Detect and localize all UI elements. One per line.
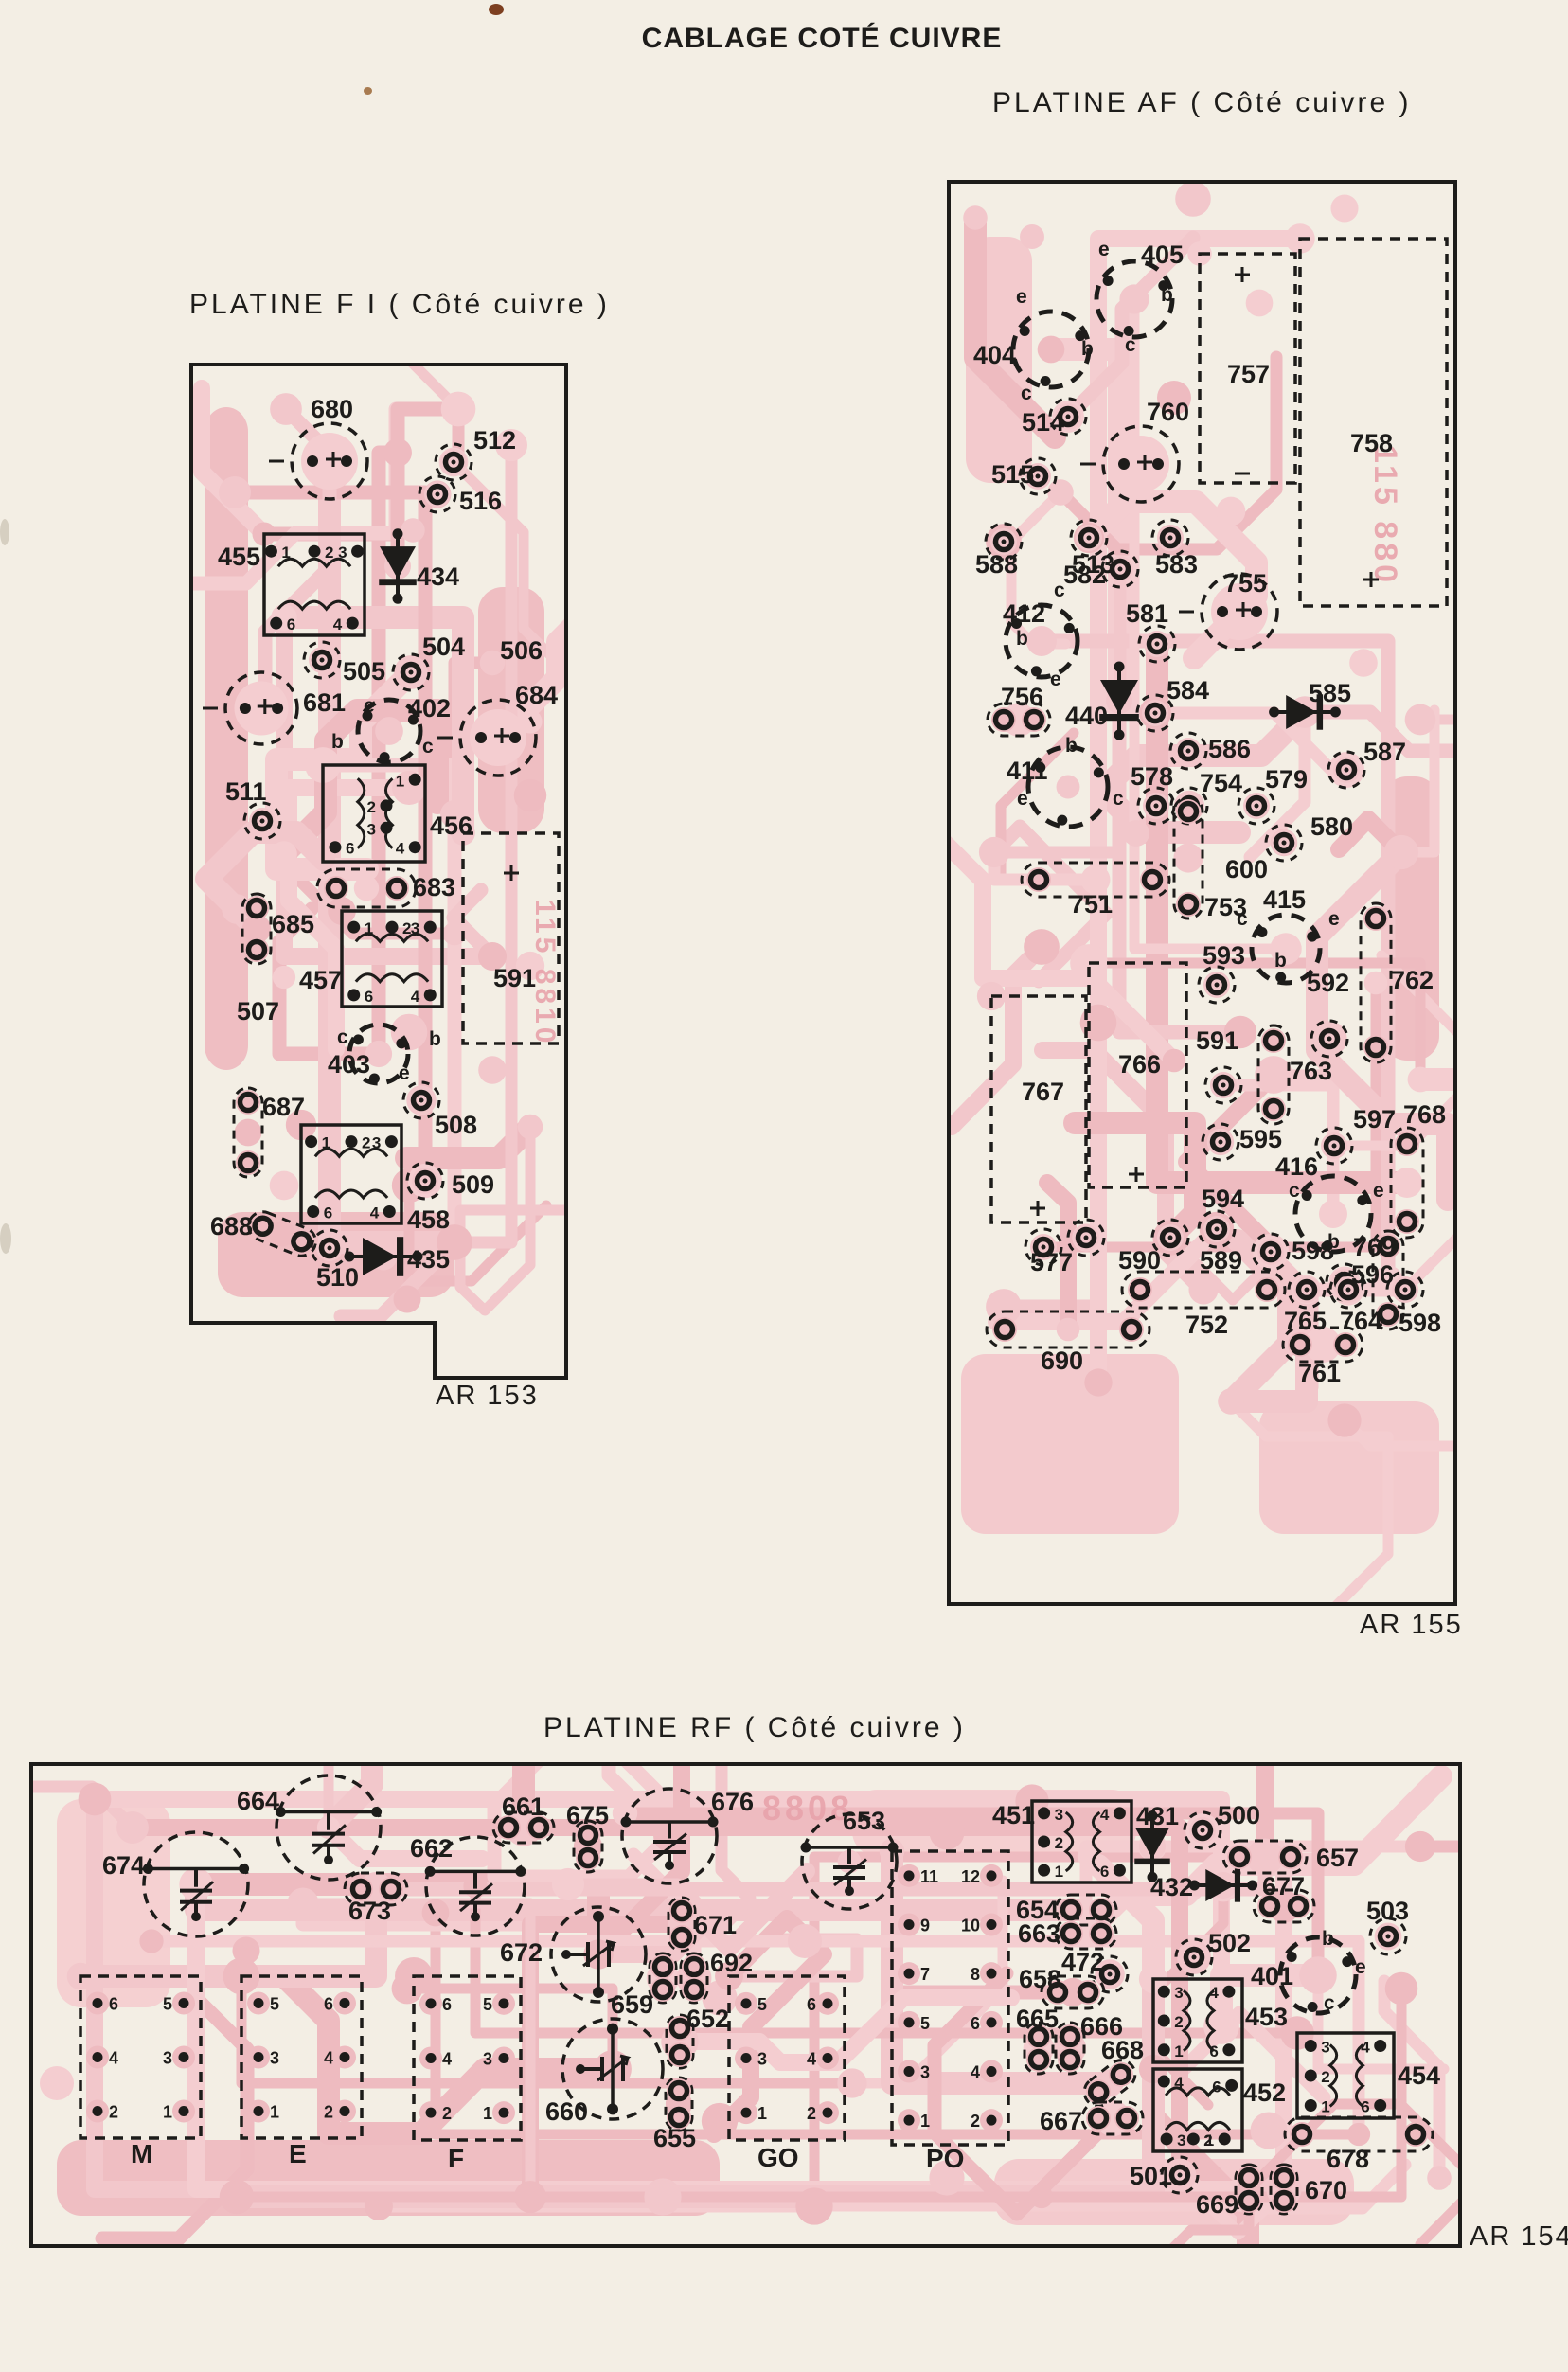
svg-text:1: 1 [270,2103,279,2122]
svg-text:1: 1 [1205,2131,1214,2149]
svg-text:2: 2 [807,2104,816,2123]
label-665: 665 [1016,2005,1059,2033]
label-e: e [364,695,375,717]
label-M: M [131,2139,152,2168]
label-411: 411 [1007,757,1048,785]
paper-speck [0,1223,11,1254]
label-GO: GO [757,2143,799,2172]
svg-text:4: 4 [396,840,405,858]
label-754: 754 [1200,769,1242,797]
label-c: c [1324,1992,1335,2014]
scanned-page: CABLAGE COTÉ CUIVRE PLATINE F I ( Côté c… [0,0,1568,2367]
label-657: 657 [1316,1844,1359,1872]
label-508: 508 [435,1111,477,1139]
svg-text:6: 6 [1209,2042,1218,2060]
svg-text:3: 3 [270,2049,279,2068]
label-587: 587 [1363,738,1406,766]
label-586: 586 [1208,735,1251,763]
label-456: 456 [430,811,472,840]
label-661: 661 [502,1792,544,1821]
label-683: 683 [413,873,455,901]
svg-text:4: 4 [370,1204,380,1222]
svg-text:4: 4 [807,2050,816,2069]
svg-text:1: 1 [1174,2042,1183,2060]
label-673: 673 [348,1897,391,1925]
svg-text:6: 6 [807,1995,816,2014]
svg-text:4: 4 [411,988,420,1006]
label-690: 690 [1041,1347,1083,1375]
label-e: e [1016,286,1027,308]
label-578: 578 [1131,762,1173,791]
svg-text:6: 6 [287,615,295,633]
label-758: 758 [1350,429,1393,457]
label-515: 515 [991,460,1034,489]
label-458: 458 [407,1205,450,1234]
label-670: 670 [1305,2176,1347,2204]
label-e: e [399,1062,410,1084]
svg-text:3: 3 [757,2050,767,2069]
svg-text:3: 3 [1177,2131,1185,2149]
label-506: 506 [500,636,543,665]
svg-text:12: 12 [961,1867,980,1886]
label-510: 510 [316,1263,359,1292]
label-c: c [1237,908,1248,930]
label-405: 405 [1141,241,1184,269]
label-b: b [429,1028,441,1050]
label-677: 677 [1262,1872,1305,1900]
label-412: 412 [1003,599,1045,628]
label-585: 585 [1309,679,1351,707]
svg-text:2: 2 [1321,2068,1329,2086]
label-c: c [1289,1180,1300,1202]
label-e: e [1355,1956,1366,1978]
label-c: c [337,1026,348,1048]
label-761: 761 [1298,1359,1341,1387]
svg-text:6: 6 [324,1204,332,1222]
label-c: c [1054,580,1065,601]
svg-text:2: 2 [366,798,375,816]
label-509: 509 [452,1170,494,1199]
label-669: 669 [1196,2190,1238,2219]
label-668: 668 [1101,2036,1144,2064]
label-584: 584 [1167,676,1209,704]
label-516: 516 [459,487,502,515]
label-763: 763 [1290,1057,1332,1085]
svg-text:4: 4 [333,615,343,633]
svg-text:4: 4 [1100,1806,1110,1824]
svg-text:6: 6 [109,1995,118,2014]
svg-text:4: 4 [324,2049,333,2068]
svg-text:5: 5 [757,1995,767,2014]
label-688: 688 [210,1212,253,1240]
label-505: 505 [343,657,385,686]
label-663: 663 [1018,1919,1060,1948]
label-b: b [1274,950,1287,972]
label-457: 457 [299,966,342,994]
svg-text:5: 5 [163,1995,172,2014]
label-b: b [1327,1231,1340,1253]
label-765: 765 [1284,1307,1327,1335]
label-764: 764 [1340,1307,1382,1335]
svg-text:6: 6 [1212,2078,1221,2096]
svg-text:9: 9 [920,1917,930,1935]
svg-text:3: 3 [372,1134,381,1152]
label-514: 514 [1022,408,1064,437]
svg-text:3: 3 [483,2050,492,2069]
label-597: 597 [1353,1105,1396,1133]
label-595: 595 [1239,1125,1282,1153]
label-684: 684 [515,681,558,709]
label-692: 692 [710,1949,753,1977]
label-e: e [1017,788,1028,810]
rf-copper-layer: 8808 [0,1448,1568,2367]
label-655: 655 [653,2124,696,2152]
label-592: 592 [1307,969,1349,997]
svg-text:6: 6 [346,840,354,858]
label-681: 681 [303,688,346,717]
label-762: 762 [1391,966,1434,994]
label-589: 589 [1200,1246,1242,1275]
label-431: 431 [1136,1802,1179,1830]
label-658: 658 [1019,1965,1061,1993]
svg-text:3: 3 [1174,1984,1183,2002]
svg-text:1: 1 [920,2112,930,2131]
label-769: 769 [1353,1233,1396,1261]
label-403: 403 [328,1050,370,1079]
af-pad1-13 [1139,626,1175,662]
fi-xfmr-19: 12364 [301,1125,401,1223]
svg-text:2: 2 [971,2112,980,2131]
label-579: 579 [1265,765,1308,794]
svg-text:6: 6 [1100,1863,1109,1881]
svg-text:2: 2 [1055,1834,1063,1852]
label-401: 401 [1251,1962,1293,1990]
label-760: 760 [1147,398,1189,426]
label-662: 662 [410,1834,453,1863]
svg-text:2: 2 [1174,2013,1183,2031]
label-676: 676 [711,1788,754,1816]
label-e: e [1050,669,1061,690]
svg-text:3: 3 [1055,1806,1063,1824]
svg-text:3: 3 [411,919,419,937]
label-767: 767 [1022,1078,1064,1106]
svg-text:1: 1 [483,2104,492,2123]
svg-text:4: 4 [1174,2074,1184,2092]
label-755: 755 [1224,569,1267,597]
svg-text:8: 8 [971,1965,980,1984]
svg-text:3: 3 [366,820,375,838]
label-660: 660 [545,2097,588,2126]
svg-text:1: 1 [1055,1863,1063,1881]
label-583: 583 [1155,550,1198,579]
label-675: 675 [566,1801,609,1829]
svg-text:2: 2 [324,2103,333,2122]
svg-text:5: 5 [483,1995,492,2014]
label-593: 593 [1203,941,1245,970]
label-452: 452 [1243,2078,1286,2107]
label-b: b [331,731,344,753]
label-507: 507 [237,997,279,1025]
label-680: 680 [311,395,353,423]
svg-text:2: 2 [362,1134,370,1152]
label-591: 591 [493,964,536,992]
label-b: b [1081,338,1094,360]
label-502: 502 [1208,1929,1251,1957]
label-435: 435 [407,1245,450,1274]
label-671: 671 [694,1911,737,1939]
label-588: 588 [975,550,1018,579]
label-E: E [289,2139,307,2168]
svg-text:4: 4 [109,2049,118,2068]
label-e: e [1098,239,1110,260]
label-582: 582 [1063,561,1106,589]
label-472: 472 [1061,1948,1104,1976]
svg-text:1: 1 [1321,2098,1329,2116]
svg-text:5: 5 [920,2014,930,2033]
label-600: 600 [1225,855,1268,883]
svg-text:4: 4 [1361,2039,1370,2057]
svg-text:1: 1 [396,772,404,790]
svg-text:6: 6 [1361,2098,1369,2116]
label-685: 685 [272,910,314,938]
label-766: 766 [1118,1050,1161,1079]
label-512: 512 [473,426,516,455]
svg-text:10: 10 [961,1917,980,1935]
label-757: 757 [1227,360,1270,388]
af-pad1-31 [1205,1067,1241,1103]
label-594: 594 [1202,1185,1244,1213]
label-672: 672 [500,1938,543,1967]
label-c: c [1125,334,1136,356]
rf-pins-17: 654321 [414,1976,521,2140]
label-590: 590 [1118,1246,1161,1275]
label-e: e [1328,908,1340,930]
svg-text:11: 11 [920,1867,938,1886]
label-580: 580 [1310,812,1353,841]
label-591: 591 [1196,1026,1238,1055]
label-768: 768 [1403,1100,1446,1129]
label-667: 667 [1040,2107,1082,2135]
svg-text:1: 1 [163,2103,172,2122]
label-687: 687 [262,1093,305,1121]
svg-text:5: 5 [270,1995,279,2014]
label-659: 659 [611,1990,653,2019]
af-pad1-37 [1316,1128,1352,1164]
label-504: 504 [422,633,465,661]
svg-text:6: 6 [324,1995,333,2014]
svg-text:1: 1 [322,1134,330,1152]
label-b: b [1322,1928,1334,1950]
svg-text:4: 4 [971,2063,980,2082]
label-577: 577 [1030,1248,1073,1276]
svg-text:6: 6 [442,1995,452,2014]
svg-text:8808: 8808 [762,1789,853,1828]
label-b: b [1065,735,1078,757]
label-434: 434 [417,562,459,591]
label-c: c [1113,788,1124,810]
label-652: 652 [686,2005,729,2033]
svg-text:4: 4 [442,2050,452,2069]
label-664: 664 [237,1787,279,1815]
svg-text:2: 2 [109,2103,118,2122]
label-402: 402 [408,694,451,722]
svg-text:4: 4 [1209,1984,1219,2002]
svg-text:3: 3 [163,2049,172,2068]
paper-speck [0,519,9,545]
label-598: 598 [1399,1309,1441,1337]
label-404: 404 [973,341,1016,369]
label-511: 511 [225,777,267,806]
label-453: 453 [1245,2003,1288,2031]
label-756: 756 [1001,683,1043,711]
label-c: c [422,736,434,758]
svg-text:2: 2 [325,544,333,562]
boards-canvas: 115 881012364123461236412364680512516455… [0,0,1568,2367]
label-b: b [1016,628,1028,650]
label-PO: PO [926,2144,964,2173]
svg-text:1: 1 [757,2104,767,2123]
label-678: 678 [1327,2145,1369,2173]
label-751: 751 [1070,890,1113,918]
label-b: b [1161,284,1173,306]
label-752: 752 [1185,1311,1228,1339]
label-440: 440 [1065,702,1108,730]
label-653: 653 [843,1807,885,1835]
svg-text:3: 3 [1321,2039,1329,2057]
rf-xfmr-40: 46321 [1153,2069,1242,2151]
label-501: 501 [1130,2162,1172,2190]
label-454: 454 [1398,2061,1440,2090]
label-455: 455 [218,543,260,571]
svg-text:3: 3 [338,544,347,562]
svg-text:7: 7 [920,1965,930,1984]
label-c: c [1021,383,1032,404]
label-581: 581 [1126,599,1168,628]
svg-text:1: 1 [365,919,373,937]
svg-text:115 880: 115 880 [1367,445,1403,586]
label-432: 432 [1150,1873,1193,1901]
paper-speck [489,4,504,15]
label-500: 500 [1218,1801,1260,1829]
label-e: e [1373,1180,1384,1202]
svg-text:2: 2 [442,2104,452,2123]
label-F: F [448,2144,464,2173]
af-pad1-28 [1199,967,1235,1003]
label-416: 416 [1275,1152,1318,1181]
svg-text:3: 3 [920,2063,930,2082]
label-415: 415 [1263,885,1306,914]
label-503: 503 [1366,1897,1409,1925]
paper-speck [364,87,372,95]
label-451: 451 [992,1801,1035,1829]
label-596: 596 [1351,1260,1394,1289]
svg-text:6: 6 [971,2014,980,2033]
svg-text:1: 1 [281,544,290,562]
pcb-diagrams-svg: 115 881012364123461236412364680512516455… [0,0,1568,2367]
label-674: 674 [102,1851,145,1880]
svg-text:6: 6 [365,988,373,1006]
